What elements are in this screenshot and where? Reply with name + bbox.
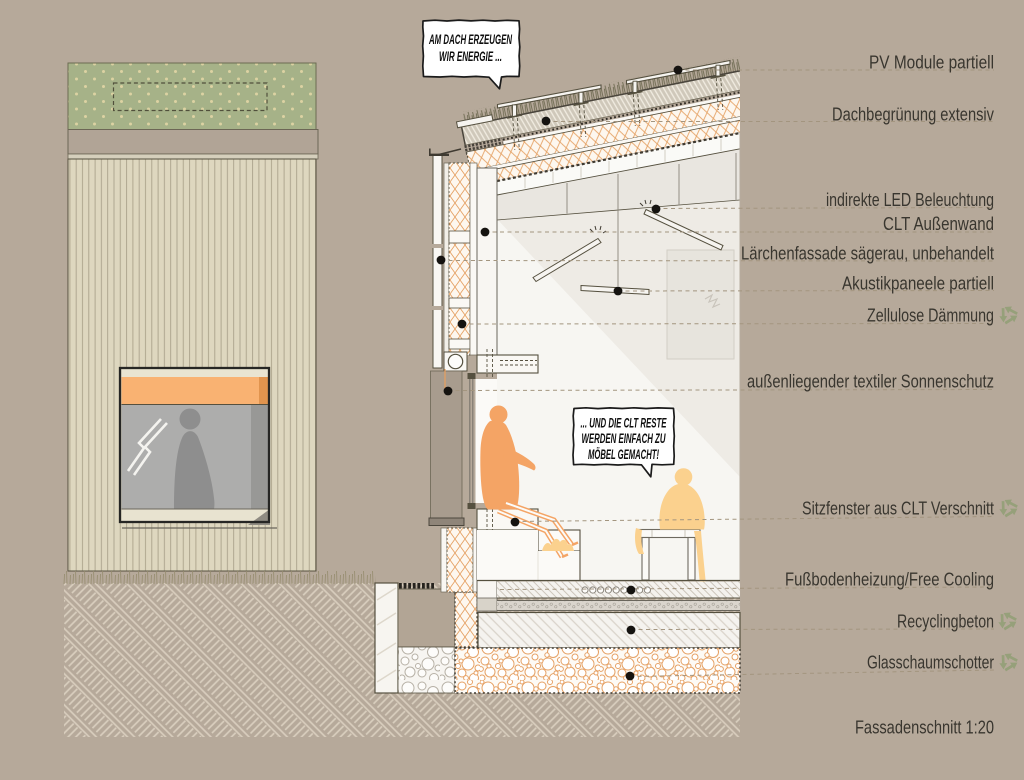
svg-text:PV Module partiell: PV Module partiell [869, 52, 994, 73]
svg-text:CLT Außenwand: CLT Außenwand [883, 213, 994, 234]
svg-text:außenliegender textiler Sonnen: außenliegender textiler Sonnenschutz [747, 371, 994, 392]
svg-text:WERDEN EINFACH ZU: WERDEN EINFACH ZU [582, 431, 666, 446]
svg-text:indirekte LED Beleuchtung: indirekte LED Beleuchtung [826, 189, 994, 210]
svg-text:Fußbodenheizung/Free Cooling: Fußbodenheizung/Free Cooling [785, 569, 994, 590]
svg-text:Fassadenschnitt 1:20: Fassadenschnitt 1:20 [855, 717, 994, 738]
svg-text:Zellulose Dämmung: Zellulose Dämmung [867, 305, 994, 326]
svg-text:Dachbegrünung extensiv: Dachbegrünung extensiv [832, 104, 995, 125]
svg-text:MÖBEL GEMACHT!: MÖBEL GEMACHT! [588, 447, 659, 462]
svg-text:WIR ENERGIE ...: WIR ENERGIE ... [439, 49, 502, 64]
svg-text:Lärchenfassade sägerau, unbeha: Lärchenfassade sägerau, unbehandelt [741, 243, 994, 264]
svg-text:Akustikpaneele partiell: Akustikpaneele partiell [842, 273, 994, 294]
svg-text:... UND DIE CLT RESTE: ... UND DIE CLT RESTE [581, 416, 668, 431]
svg-text:Recyclingbeton: Recyclingbeton [897, 611, 994, 632]
svg-text:Sitzfenster aus CLT Verschnitt: Sitzfenster aus CLT Verschnitt [802, 498, 994, 519]
svg-text:Glasschaumschotter: Glasschaumschotter [867, 652, 994, 673]
svg-text:AM DACH ERZEUGEN: AM DACH ERZEUGEN [428, 32, 512, 47]
